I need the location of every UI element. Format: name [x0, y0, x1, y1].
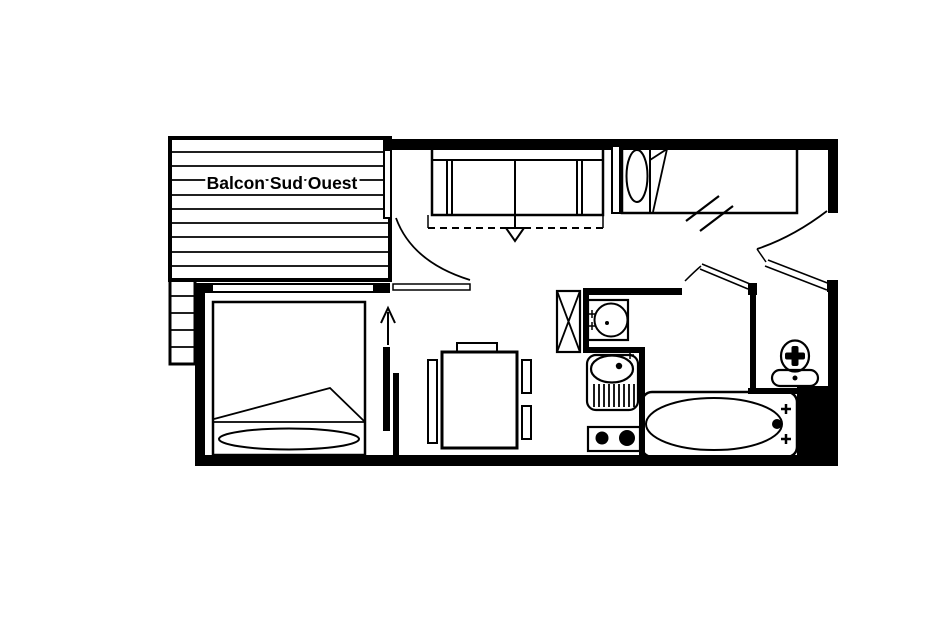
two-burner-stove — [588, 427, 640, 451]
single-bed-blanket-fold — [650, 149, 667, 212]
bath-corner-block — [797, 386, 838, 460]
double-bed-blanket-fold — [214, 388, 364, 421]
wc-left-wall — [750, 293, 756, 390]
kitchen-counter-top-wall — [583, 347, 645, 353]
balcony-deck-lines — [172, 152, 388, 266]
dining-table — [442, 352, 517, 448]
burner-left — [596, 432, 609, 445]
wc-door-leaf — [700, 264, 750, 289]
right-wall-wc — [828, 292, 838, 390]
chair-right-2 — [522, 406, 531, 439]
balcony-side-strip — [170, 280, 195, 364]
kitchen-sink — [587, 351, 638, 410]
entry-door-leaf — [765, 260, 830, 290]
slide-direction-arrow — [381, 308, 395, 345]
burner-right — [619, 430, 635, 446]
sliding-door-panel-2 — [393, 373, 399, 465]
wc — [772, 341, 818, 387]
sink-drain — [616, 363, 622, 369]
bedroom — [213, 302, 399, 465]
closet-x — [557, 291, 580, 352]
bathroom — [588, 300, 797, 457]
bedroom-wall-left-block — [195, 283, 212, 293]
chair-right-1 — [522, 360, 531, 393]
bathtub — [642, 392, 797, 457]
bedroom-wall-right-block — [374, 283, 390, 293]
sofa-bed-details — [432, 160, 603, 215]
toilet-bowl-dot — [793, 376, 798, 381]
sofa-bed-partition — [612, 146, 620, 213]
wc-door-swing-arc — [685, 266, 701, 281]
entry-door-swing-arc — [757, 211, 827, 249]
balcony-partition — [384, 150, 391, 218]
balcony-door-baseline — [393, 284, 470, 290]
sofa-unfold-arrow — [506, 216, 524, 241]
bedroom-window-wall — [212, 284, 374, 292]
floor-plan-canvas: Balcon Sud Ouest — [0, 0, 940, 627]
washbasin-drain — [605, 321, 609, 325]
toilet-cross-icon — [785, 346, 805, 366]
bedroom-left-wall — [195, 291, 205, 461]
double-bed-pillow — [219, 429, 359, 450]
entry-door-arc-connector — [757, 249, 766, 262]
washbasin — [588, 300, 628, 340]
bathtub-drain — [772, 419, 782, 429]
chair-left — [428, 360, 437, 443]
sink-draining-ribs — [594, 384, 634, 407]
right-wall-upper — [828, 139, 838, 213]
kitchen-entry-wall — [583, 288, 682, 295]
sliding-door-panel-1 — [383, 347, 390, 431]
single-bed-pillow — [627, 150, 648, 202]
toilet — [772, 341, 818, 387]
entry-door-stub — [827, 280, 838, 292]
balcony-label: Balcon Sud Ouest — [207, 173, 358, 193]
balcony-side-rungs — [170, 296, 195, 347]
